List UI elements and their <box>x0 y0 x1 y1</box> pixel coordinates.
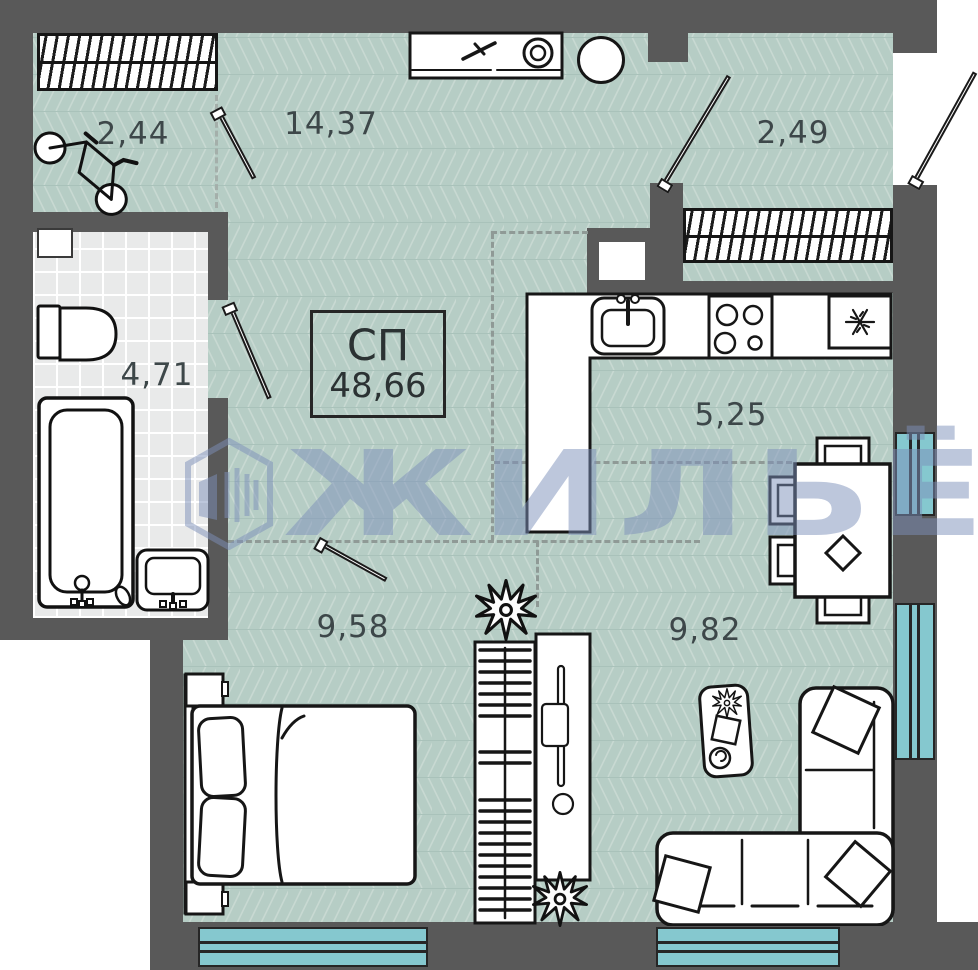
plan-total-area: 48,66 <box>329 368 426 404</box>
coffee-table-icon <box>698 680 756 780</box>
radiator-icon <box>37 33 218 91</box>
window <box>198 927 428 967</box>
pillow <box>198 717 246 797</box>
room-label-hall: 14,37 <box>284 106 378 142</box>
sofa-icon <box>650 678 898 926</box>
washing-machine-icon <box>405 28 570 86</box>
partition-dashed <box>491 231 588 234</box>
stove-icon <box>709 296 772 358</box>
outside-area <box>0 640 150 970</box>
window <box>656 927 840 967</box>
plant-icon <box>532 871 588 927</box>
kitchen-sink-icon <box>592 295 664 354</box>
water-heater-icon <box>577 36 625 84</box>
dining-table-group <box>763 432 898 627</box>
plant-icon <box>475 579 537 641</box>
room-label-kitchen: 5,25 <box>694 397 767 433</box>
plan-type-label: СП <box>347 324 409 368</box>
toilet-icon <box>38 306 116 360</box>
window <box>895 603 935 760</box>
fridge-icon <box>829 296 891 348</box>
wall <box>0 0 33 640</box>
room-label-loggia-left: 2,44 <box>96 116 169 152</box>
wall <box>650 183 683 293</box>
window <box>895 432 935 516</box>
vent-shaft <box>37 228 73 258</box>
wall <box>208 232 228 300</box>
wall <box>893 33 937 53</box>
partition-dashed <box>491 233 494 541</box>
wall <box>150 640 183 970</box>
wall <box>893 185 937 928</box>
wall <box>0 618 228 640</box>
partition-dashed <box>228 540 700 543</box>
plan-title-box: СП 48,66 <box>310 310 446 418</box>
pillow <box>198 797 246 877</box>
radiator-icon <box>683 208 893 263</box>
room-label-bathroom: 4,71 <box>120 357 193 393</box>
room-label-loggia-right: 2,49 <box>756 115 829 151</box>
bathtub-icon <box>39 398 133 608</box>
nightstand-icon <box>186 882 223 914</box>
room-label-living: 9,82 <box>668 612 741 648</box>
floor-plan: 2,44 14,37 2,49 4,71 5,25 9,58 9,82 СП 4… <box>0 0 978 970</box>
outside-area <box>937 0 978 922</box>
dining-table-icon <box>795 464 890 597</box>
bed-group <box>180 670 420 920</box>
bathroom-fixtures <box>30 296 212 618</box>
nightstand-icon <box>186 674 223 706</box>
washbasin-icon <box>137 550 208 610</box>
doorway-opening <box>893 53 937 185</box>
wall <box>648 33 688 62</box>
vent-shaft <box>599 242 645 280</box>
room-label-bedroom: 9,58 <box>316 609 389 645</box>
